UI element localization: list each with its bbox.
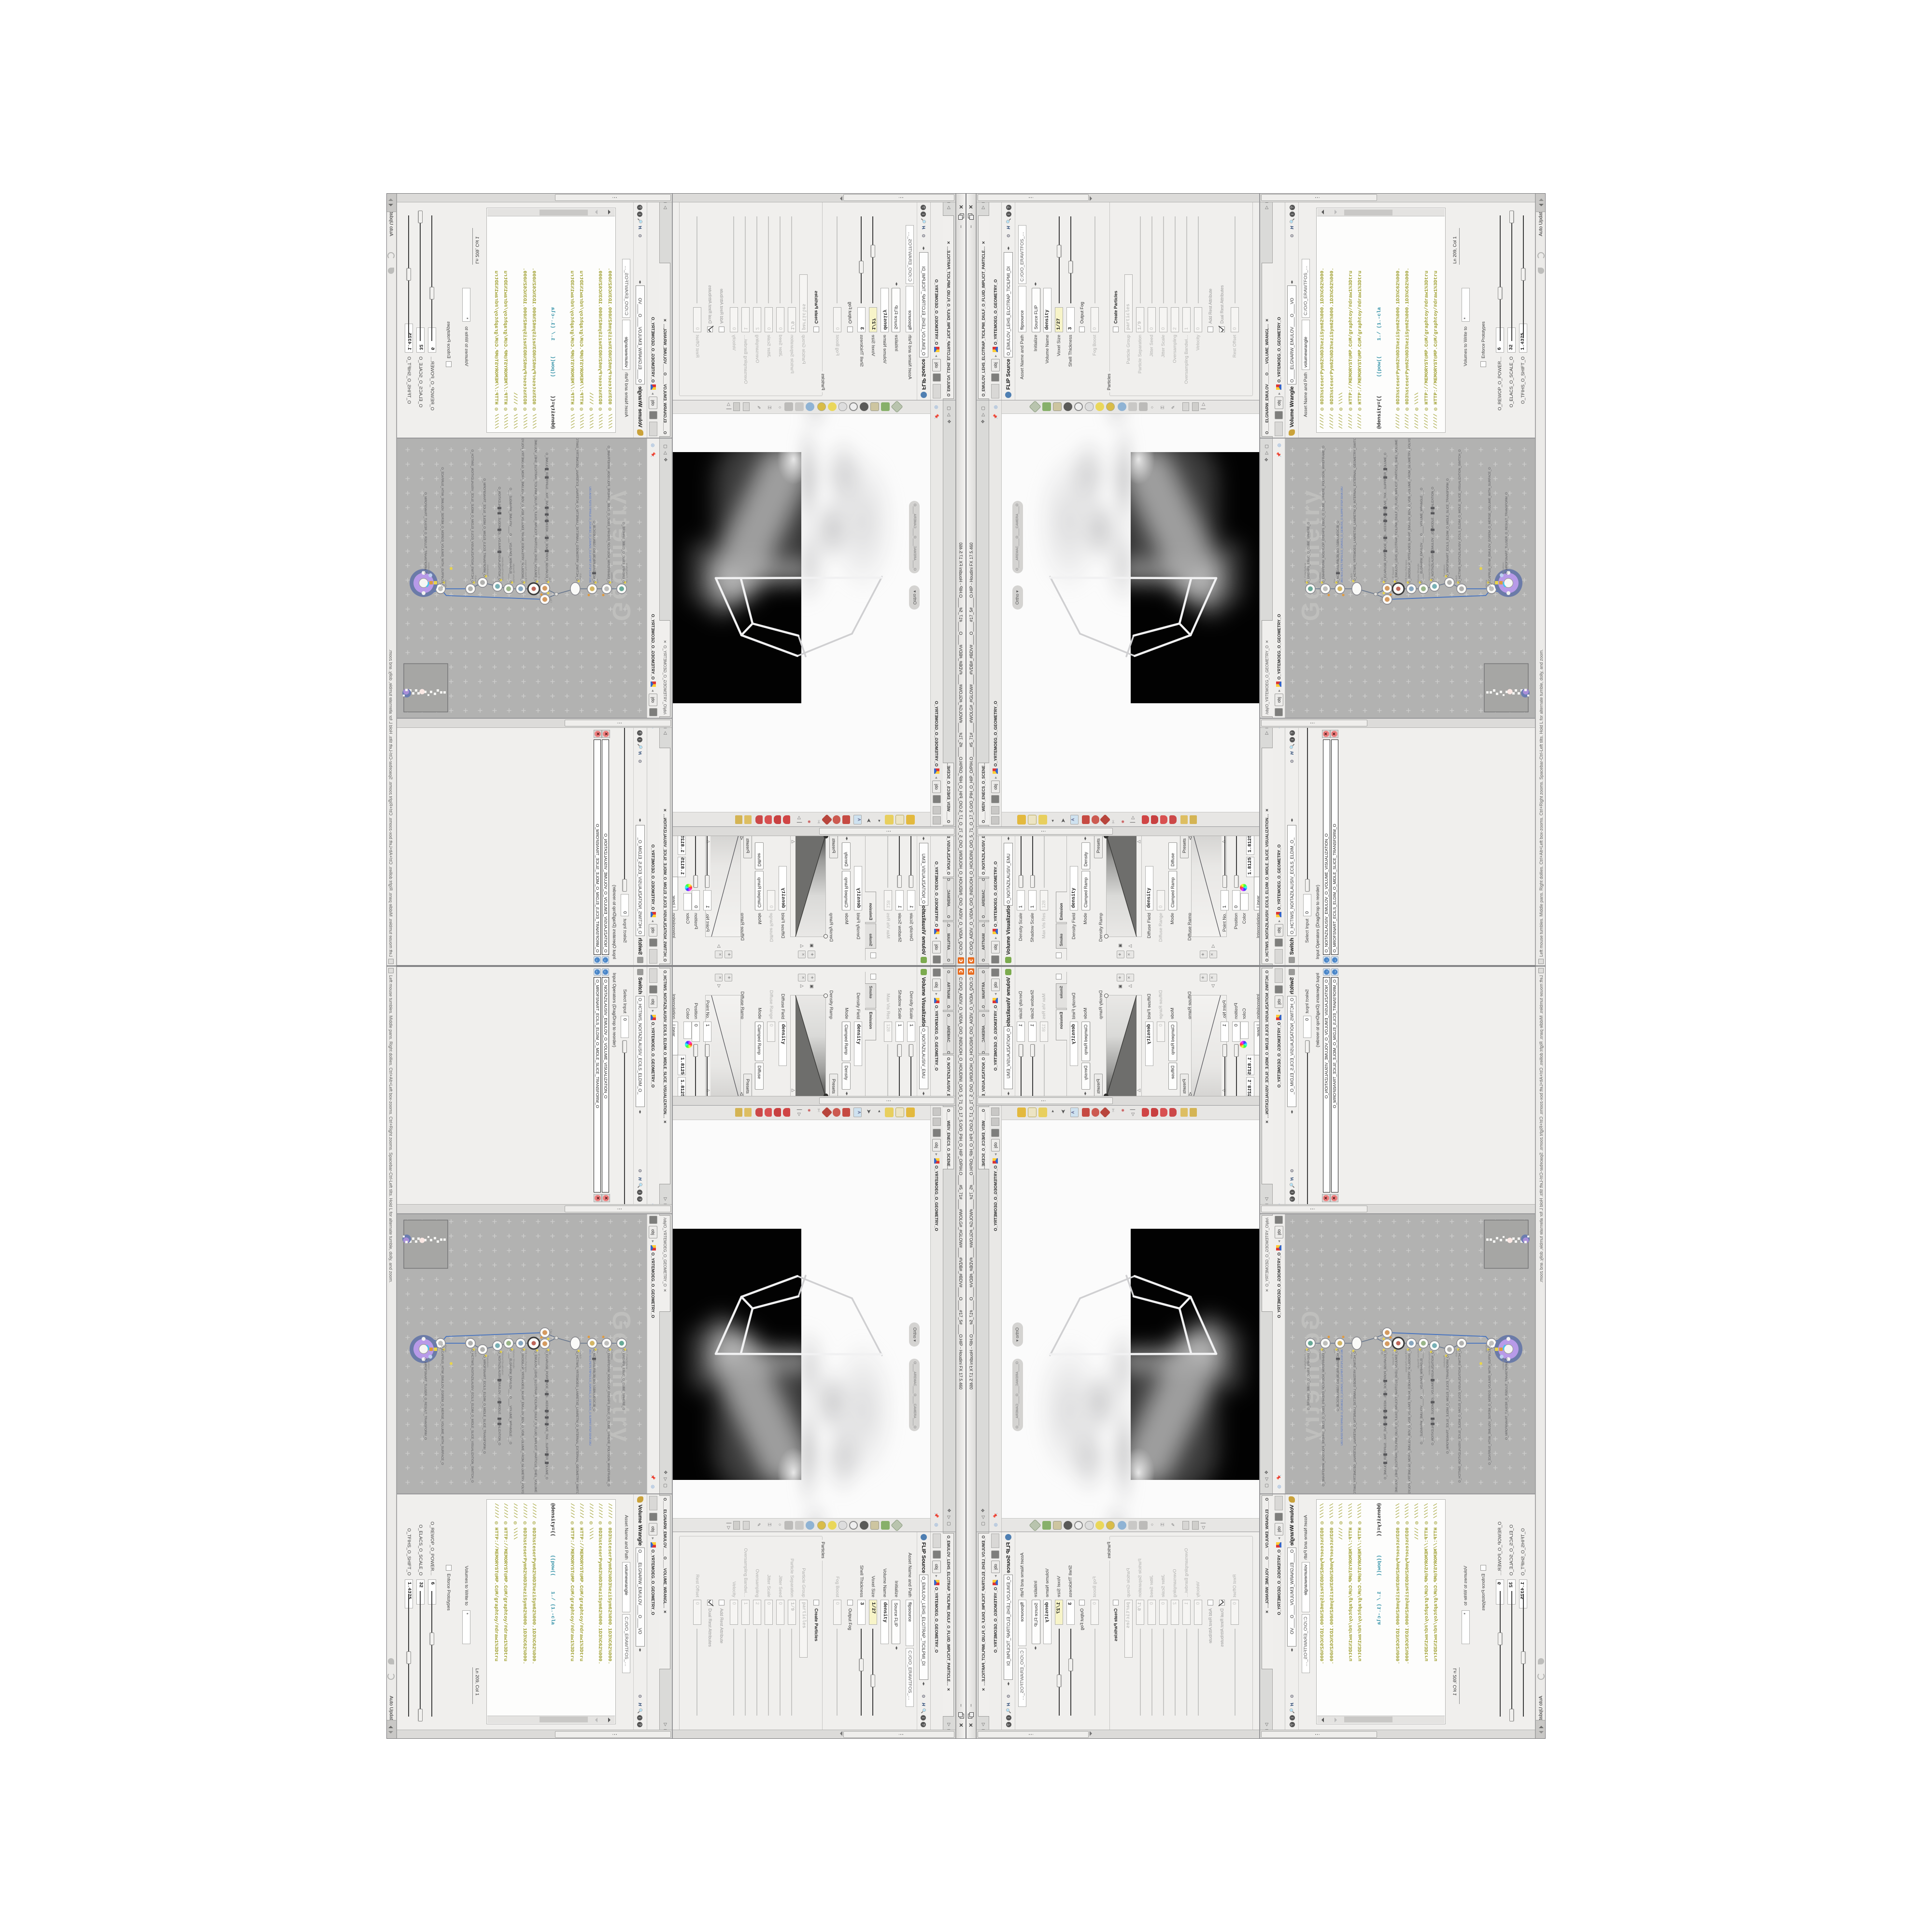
svg-text:Transform: Transform xyxy=(486,565,489,577)
svg-text:O_HCTIWS_NOITAZILAUSIV_ECILS_E: O_HCTIWS_NOITAZILAUSIV_ECILS_ELDIM_O_MID… xyxy=(1458,1349,1462,1482)
svg-text:am_CubeSphere: am_CubeSphere xyxy=(625,1349,628,1369)
svg-text:Geometry: Geometry xyxy=(607,488,635,621)
svg-text:O_EMULOV_LEHS_ELCITRAP_TICILPM: O_EMULOV_LEHS_ELCITRAP_TICILPMI_DIULF_O_… xyxy=(1395,439,1398,582)
svg-text:O_MROFSNART_ECILS_ELDIM_O_MIDL: O_MROFSNART_ECILS_ELDIM_O_MIDLE_SLICE_TR… xyxy=(483,1355,486,1454)
svg-text:Transform: Transform xyxy=(486,1355,489,1367)
svg-text:O_MROFSNART_TLUSER_O_RESULT_TR: O_MROFSNART_TLUSER_O_RESULT_TRANSFORM_O xyxy=(1505,1358,1508,1440)
svg-text:O_EMULOV_LEHS_ELCITRAP_TICILPM: O_EMULOV_LEHS_ELCITRAP_TICILPMI_DIULF_O_… xyxy=(534,439,537,582)
svg-text:O_EMARFERIW_NOGYLOP_EREHPS_EBU: O_EMARFERIW_NOGYLOP_EREHPS_EBUC_O_CUBE_S… xyxy=(1322,446,1325,583)
svg-text:Clip: Clip xyxy=(548,578,551,582)
svg-text:Volume Wrangle: Volume Wrangle xyxy=(512,1349,515,1368)
svg-text:Transform: Transform xyxy=(427,562,430,574)
svg-text:VolumeVisualization: VolumeVisualization xyxy=(501,557,504,581)
svg-text:O_NC█DASLRB(JB(,BO,∖GBN,UEOCJB: O_NC█DASLRB(JB(,BO,∖GBN,UEOCJB_O xyxy=(1336,1349,1340,1411)
svg-text:O_ECARUSB_PORF█NOE_G█S…KEEIN█E: O_ECARUSB_PORF█NOE_G█S…KEEIN█EV█EG█UVE_T… xyxy=(545,1350,549,1479)
svg-text:Clip: Clip xyxy=(549,598,552,603)
svg-text:O_ECAFRUS_HTIW_EMULOV_EGREM_O_: O_ECAFRUS_HTIW_EMULOV_EGREM_O_MERGE_VOLU… xyxy=(1488,467,1492,587)
svg-text:File: File xyxy=(596,579,598,583)
svg-text:O_ECARUSB_PORF█NOE_G█S…KEEIN█E: O_ECARUSB_PORF█NOE_G█S…KEEIN█EV█EG█UVE_T… xyxy=(545,453,549,582)
svg-text:O_EMARFERIW_NOGYLOP_EREHPS_EBU: O_EMARFERIW_NOGYLOP_EREHPS_EBUC_O_CUBE_S… xyxy=(607,1349,610,1486)
svg-text:JBO.NO1,PETS.TBPOLS,O_5SAVEG_O: JBO.NO1,PETS.TBPOLS,O_5SAVEG_O_GEMUSS_O.… xyxy=(588,1349,591,1446)
svg-text:FLIP Source: FLIP Source xyxy=(537,567,540,582)
svg-text:O_SNOGILOP_YRTEMOEG_MORF_EMULO: O_SNOGILOP_YRTEMOEG_MORF_EMULOV_BDV_O_VD… xyxy=(521,439,524,583)
svg-text:O_EMULOV_LEHS_ELCITRAP_TICILPM: O_EMULOV_LEHS_ELCITRAP_TICILPMI_DIULF_O_… xyxy=(534,1350,537,1493)
svg-text:Clip: Clip xyxy=(1380,1329,1383,1334)
svg-text:O_EMULOV_LEHS_ELCITRAP_TICILPM: O_EMULOV_LEHS_ELCITRAP_TICILPMI_DIULF_O_… xyxy=(1395,1350,1398,1493)
svg-text:JBO.NO1,PETS.TBPOLS,O_5SAVEG_O: JBO.NO1,PETS.TBPOLS,O_5SAVEG_O_GEMUSS_O.… xyxy=(588,486,591,583)
svg-text:O_MROFSNART_TLUSER_O_RESULT_TR: O_MROFSNART_TLUSER_O_RESULT_TRANSFORM_O xyxy=(1505,492,1508,574)
svg-text:O_ECAFRUS_HTIW_EMULOV_EGREM_O_: O_ECAFRUS_HTIW_EMULOV_EGREM_O_MERGE_VOLU… xyxy=(440,467,444,587)
svg-text:FLIP Source: FLIP Source xyxy=(537,1350,540,1365)
svg-text:O_MROFSNART_ECILS_ELDIM_O_MIDL: O_MROFSNART_ECILS_ELDIM_O_MIDLE_SLICE_TR… xyxy=(1446,1355,1449,1454)
svg-text:Geometry: Geometry xyxy=(1297,488,1325,621)
svg-text:Volume Wrangle: Volume Wrangle xyxy=(512,564,515,583)
svg-text:O_NOITAZILAUSIV█EMULOV…(O█MODL: O_NOITAZILAUSIV█EMULOV…(O█MODLE…█IS█ALIZ… xyxy=(497,1351,501,1445)
svg-text:VDB from Polygons: VDB from Polygons xyxy=(524,1349,527,1372)
svg-text:O____ELGNARW_EMULOV____O____VO: O____ELGNARW_EMULOV____O____VOLUME_WRANG… xyxy=(1420,1349,1423,1444)
svg-text:O_NC█DASLRB(JB(,BO,∖GBN,UEOCJB: O_NC█DASLRB(JB(,BO,∖GBN,UEOCJB_O xyxy=(1336,521,1340,583)
svg-text:am_CubeSphere: am_CubeSphere xyxy=(625,563,628,583)
svg-text:Switch: Switch xyxy=(474,1349,477,1357)
svg-text:O_SNOGILOP_YRTEMOEG_MORF_EMULO: O_SNOGILOP_YRTEMOEG_MORF_EMULOV_BDV_O_VD… xyxy=(521,1349,524,1493)
svg-text:O_HCTIWS_YRTEMOEG_LANRETXE_LAN: O_HCTIWS_YRTEMOEG_LANRETXE_LANRETNI_O_IN… xyxy=(575,439,579,581)
svg-text:O_NOITAZILAUSIV█EMULOV…(O█MODL: O_NOITAZILAUSIV█EMULOV…(O█MODLE…█IS█ALIZ… xyxy=(497,487,501,581)
svg-text:O____ELGNARW_EMULOV____O____VO: O____ELGNARW_EMULOV____O____VOLUME_WRANG… xyxy=(1420,488,1423,583)
svg-text:O_MROFSNART_ECILS_ELDIM_O_MIDL: O_MROFSNART_ECILS_ELDIM_O_MIDLE_SLICE_TR… xyxy=(1446,478,1449,577)
svg-text:O_MROFSNART_TLUSER_O_RESULT_TR: O_MROFSNART_TLUSER_O_RESULT_TRANSFORM_O xyxy=(424,492,427,574)
svg-text:Merge: Merge xyxy=(444,1345,447,1352)
svg-text:Switch: Switch xyxy=(579,573,582,581)
svg-text:O_NC█DASLRB(JB(,BO,∖GBN,UEOCJB: O_NC█DASLRB(JB(,BO,∖GBN,UEOCJB_O xyxy=(592,521,596,583)
svg-text:O_EREHPS_EBUC_O_CUBE_SPHERE_O: O_EREHPS_EBUC_O_CUBE_SPHERE_O xyxy=(622,522,625,583)
svg-text:O_HCTIWS_YRTEMOEG_LANRETXE_LAN: O_HCTIWS_YRTEMOEG_LANRETXE_LANRETNI_O_IN… xyxy=(1353,439,1357,581)
svg-text:O_MROFSNART_ECILS_ELDIM_O_MIDL: O_MROFSNART_ECILS_ELDIM_O_MIDLE_SLICE_TR… xyxy=(483,478,486,577)
svg-text:O_ECAFRUS_HTIW_EMULOV_EGREM_O_: O_ECAFRUS_HTIW_EMULOV_EGREM_O_MERGE_VOLU… xyxy=(440,1345,444,1465)
svg-text:File: File xyxy=(596,1349,598,1353)
svg-text:O_HCTIWS_YRTEMOEG_LANRETXE_LAN: O_HCTIWS_YRTEMOEG_LANRETXE_LANRETNI_O_IN… xyxy=(1353,1351,1357,1493)
svg-text:Transform: Transform xyxy=(427,1358,430,1370)
svg-text:O_HCTIWS_NOITAZILAUSIV_ECILS_E: O_HCTIWS_NOITAZILAUSIV_ECILS_ELDIM_O_MID… xyxy=(1458,450,1462,583)
svg-text:O____ELGNARW_EMULOV____O____VO: O____ELGNARW_EMULOV____O____VOLUME_WRANG… xyxy=(509,1349,512,1444)
svg-text:Switch: Switch xyxy=(579,1351,582,1359)
svg-text:JBO.NO1,PETS.TBPOLS,O_5SAVEG_O: JBO.NO1,PETS.TBPOLS,O_5SAVEG_O_GEMUSS_O.… xyxy=(1341,1349,1344,1446)
svg-text:O_HCTIWS_NOITAZILAUSIV_ECILS_E: O_HCTIWS_NOITAZILAUSIV_ECILS_ELDIM_O_MID… xyxy=(470,1349,474,1482)
svg-text:O_NOITAZILAUSIV█EMULOV…(O█MODL: O_NOITAZILAUSIV█EMULOV…(O█MODLE…█IS█ALIZ… xyxy=(1431,487,1435,581)
svg-text:Geometry: Geometry xyxy=(607,1311,635,1444)
svg-text:Switch: Switch xyxy=(474,575,477,583)
svg-text:JBO.NO1,PETS.TBPOLS,O_5SAVEG_O: JBO.NO1,PETS.TBPOLS,O_5SAVEG_O_GEMUSS_O.… xyxy=(1341,486,1344,583)
svg-text:O_ECARUSB_PORF█NOE_G█S…KEEIN█E: O_ECARUSB_PORF█NOE_G█S…KEEIN█EV█EG█UVE_T… xyxy=(1383,1350,1387,1479)
svg-text:O_HCTIWS_YRTEMOEG_LANRETXE_LAN: O_HCTIWS_YRTEMOEG_LANRETXE_LANRETNI_O_IN… xyxy=(575,1351,579,1493)
svg-text:Clip: Clip xyxy=(1380,598,1383,603)
svg-text:O_NOITAZILAUSIV█EMULOV…(O█MODL: O_NOITAZILAUSIV█EMULOV…(O█MODLE…█IS█ALIZ… xyxy=(1431,1351,1435,1445)
svg-text:Geometry: Geometry xyxy=(1297,1311,1325,1444)
svg-text:O_NC█DASLRB(JB(,BO,∖GBN,UEOCJB: O_NC█DASLRB(JB(,BO,∖GBN,UEOCJB_O xyxy=(592,1349,596,1411)
svg-text:Clip: Clip xyxy=(549,1329,552,1334)
svg-text:O_EMARFERIW_NOGYLOP_EREHPS_EBU: O_EMARFERIW_NOGYLOP_EREHPS_EBUC_O_CUBE_S… xyxy=(1322,1349,1325,1486)
svg-text:VolumeVisualization: VolumeVisualization xyxy=(501,1351,504,1375)
svg-text:O_SNOGILOP_YRTEMOEG_MORF_EMULO: O_SNOGILOP_YRTEMOEG_MORF_EMULOV_BDV_O_VD… xyxy=(1408,1349,1411,1493)
svg-text:Clip: Clip xyxy=(548,1350,551,1354)
svg-text:O____ELGNARW_EMULOV____O____VO: O____ELGNARW_EMULOV____O____VOLUME_WRANG… xyxy=(509,488,512,583)
svg-text:O_HCTIWS_NOITAZILAUSIV_ECILS_E: O_HCTIWS_NOITAZILAUSIV_ECILS_ELDIM_O_MID… xyxy=(470,450,474,583)
svg-text:O_EREHPS_EBUC_O_CUBE_SPHERE_O: O_EREHPS_EBUC_O_CUBE_SPHERE_O xyxy=(1307,1349,1310,1410)
svg-text:O_ECARUSB_PORF█NOE_G█S…KEEIN█E: O_ECARUSB_PORF█NOE_G█S…KEEIN█EV█EG█UVE_T… xyxy=(1383,453,1387,582)
svg-text:O_EREHPS_EBUC_O_CUBE_SPHERE_O: O_EREHPS_EBUC_O_CUBE_SPHERE_O xyxy=(622,1349,625,1410)
svg-text:O_ECAFRUS_HTIW_EMULOV_EGREM_O_: O_ECAFRUS_HTIW_EMULOV_EGREM_O_MERGE_VOLU… xyxy=(1488,1345,1492,1465)
svg-text:O_MROFSNART_TLUSER_O_RESULT_TR: O_MROFSNART_TLUSER_O_RESULT_TRANSFORM_O xyxy=(424,1358,427,1440)
svg-text:PolyWire: PolyWire xyxy=(610,1349,613,1360)
svg-text:PolyWire: PolyWire xyxy=(610,572,613,583)
svg-text:O_SNOGILOP_YRTEMOEG_MORF_EMULO: O_SNOGILOP_YRTEMOEG_MORF_EMULOV_BDV_O_VD… xyxy=(1408,439,1411,583)
svg-text:O_EREHPS_EBUC_O_CUBE_SPHERE_O: O_EREHPS_EBUC_O_CUBE_SPHERE_O xyxy=(1307,522,1310,583)
svg-text:Merge: Merge xyxy=(444,580,447,587)
svg-text:VDB from Polygons: VDB from Polygons xyxy=(524,560,527,583)
svg-text:O_EMARFERIW_NOGYLOP_EREHPS_EBU: O_EMARFERIW_NOGYLOP_EREHPS_EBUC_O_CUBE_S… xyxy=(607,446,610,583)
